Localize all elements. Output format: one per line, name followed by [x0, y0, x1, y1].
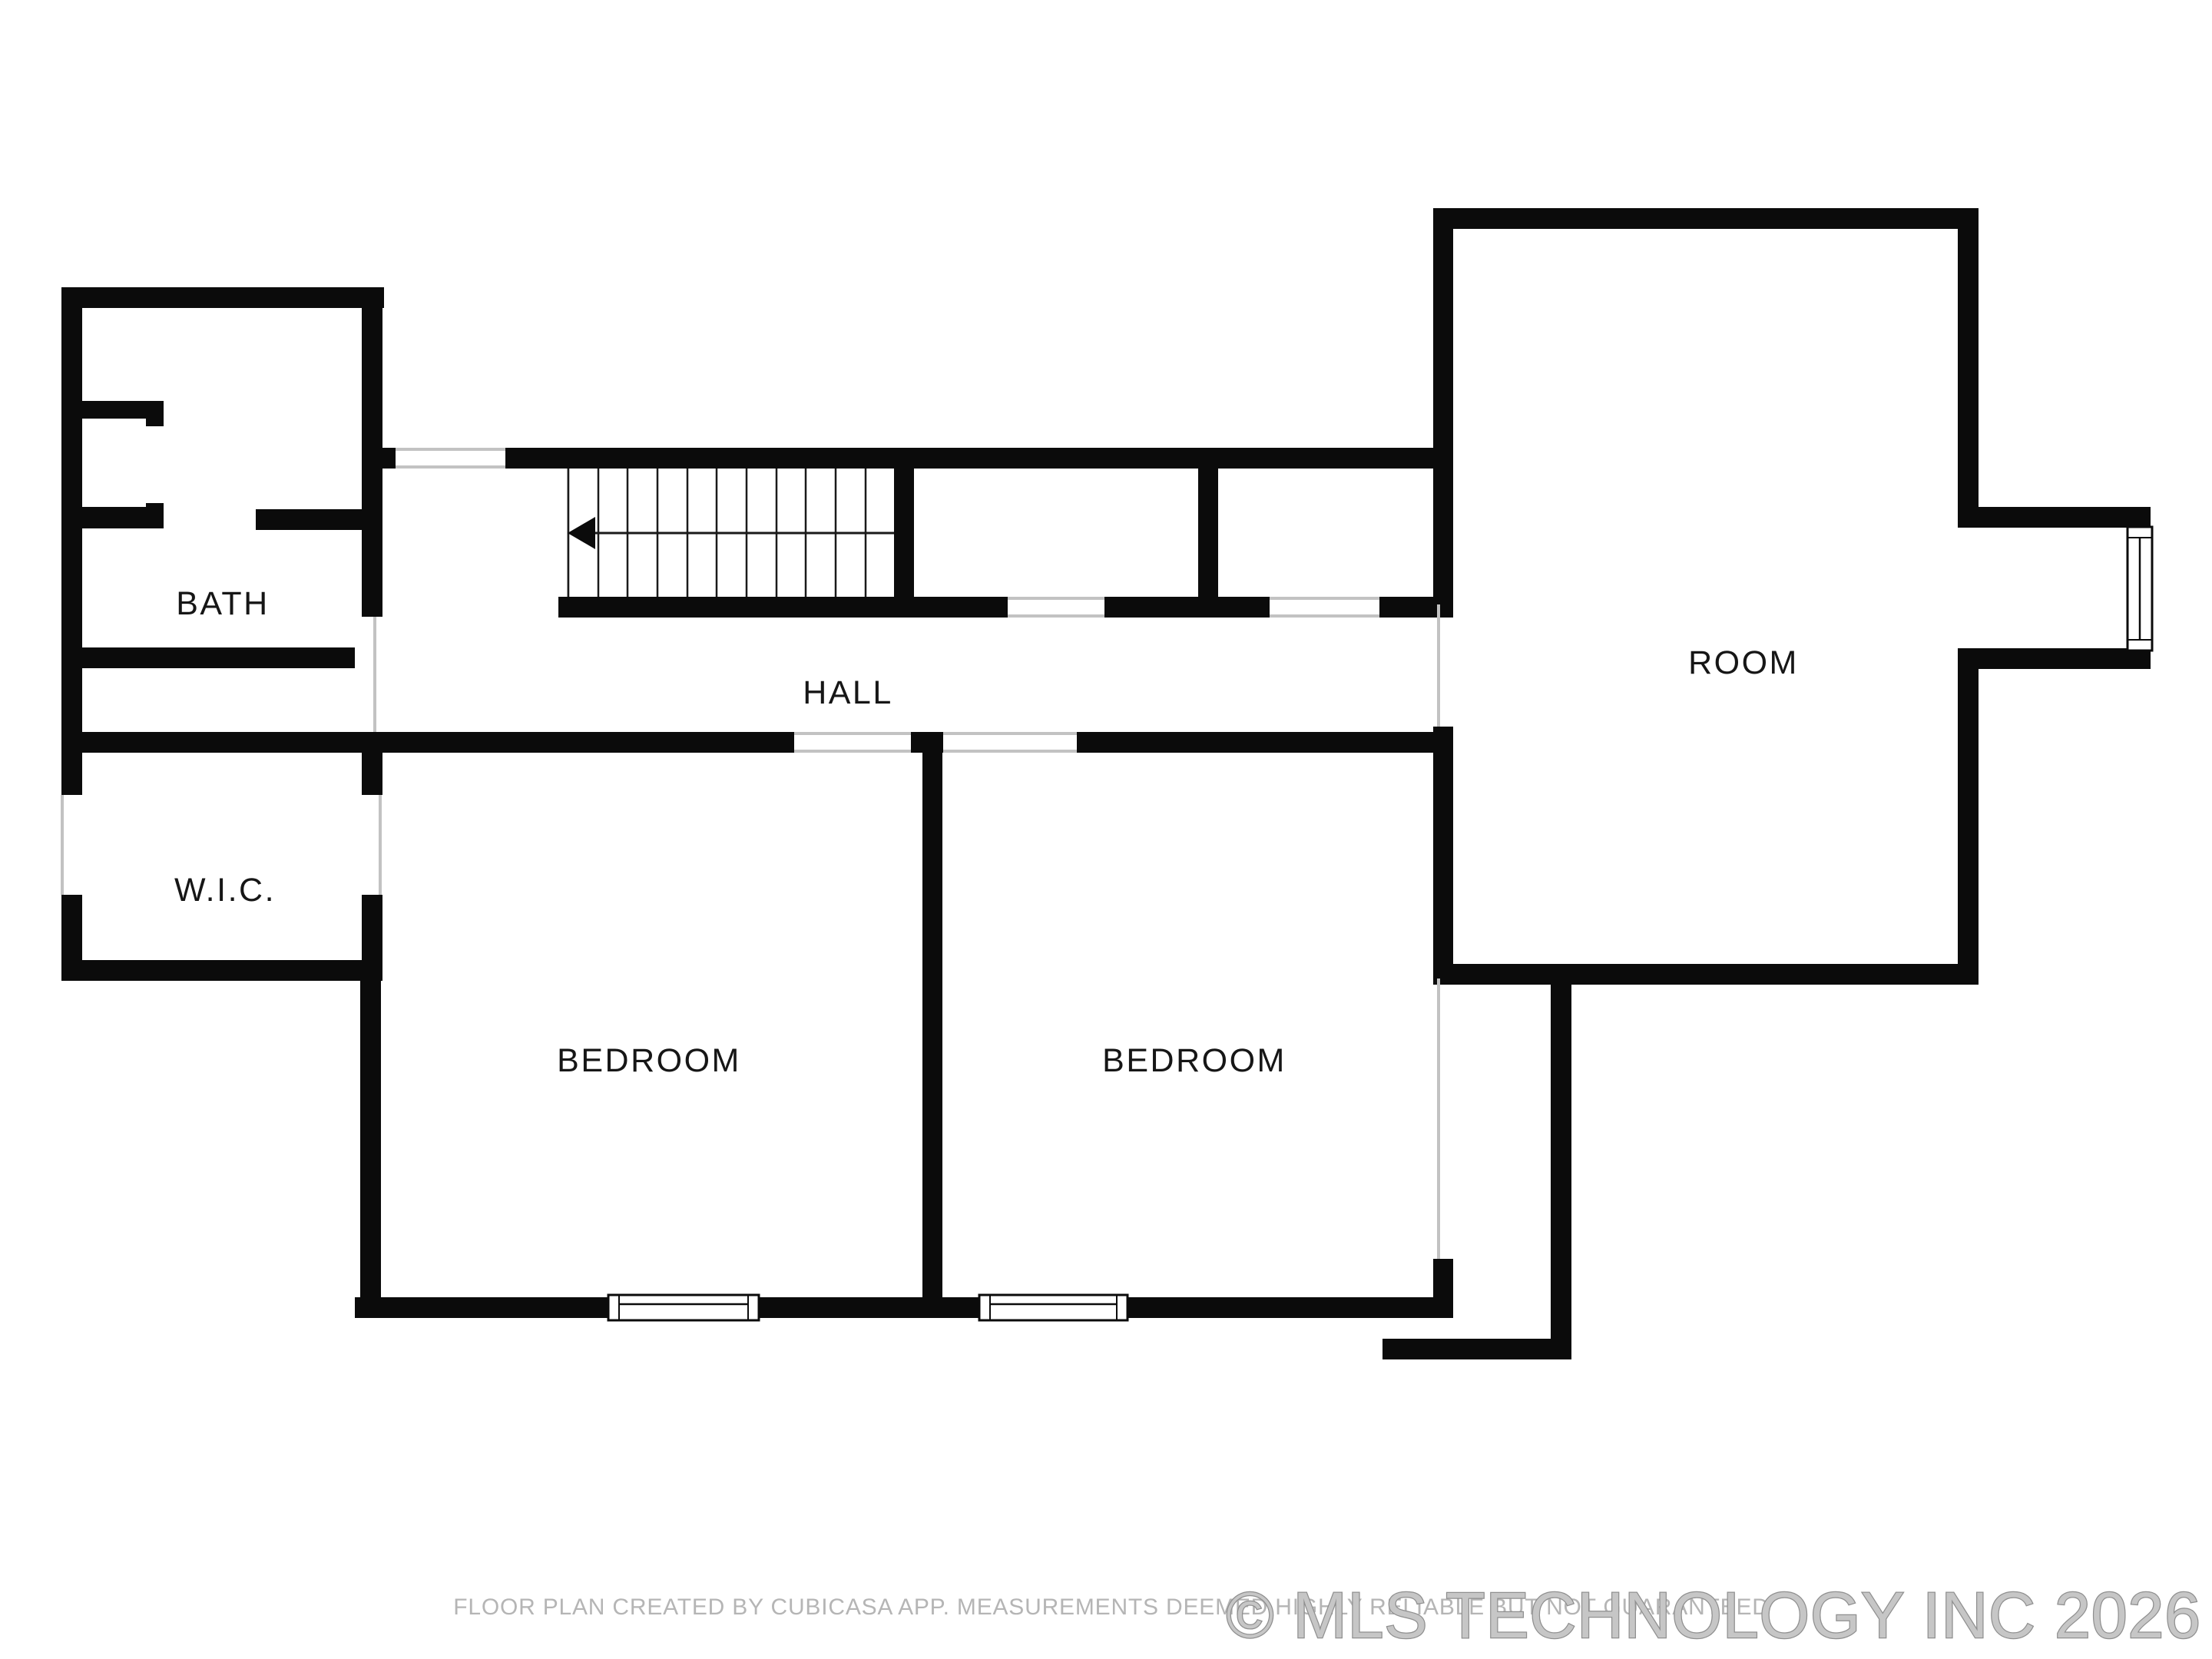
wall — [1433, 727, 1453, 979]
wall — [256, 509, 382, 530]
floor-plan-canvas: BATH W.I.C. HALL BEDROOM BEDROOM ROOM FL… — [0, 0, 2212, 1659]
walls — [61, 208, 2151, 1359]
room-label-bedroom-left: BEDROOM — [557, 1042, 741, 1079]
wall — [355, 732, 794, 753]
opening-line — [943, 732, 1077, 735]
wall — [360, 981, 381, 1318]
wall — [61, 732, 382, 753]
opening-line — [379, 795, 382, 895]
window-bedroom-right — [979, 1295, 1128, 1320]
wall — [1551, 964, 1571, 1359]
wall — [1433, 964, 1979, 985]
wall — [146, 401, 164, 426]
opening-line — [794, 732, 911, 735]
wall — [922, 732, 942, 1318]
wall — [61, 287, 384, 308]
wall — [61, 960, 382, 981]
floor-plan-page: BATH W.I.C. HALL BEDROOM BEDROOM ROOM FL… — [0, 0, 2212, 1659]
opening-line — [1437, 604, 1440, 727]
footer-watermark: © MLS TECHNOLOGY INC 2026 — [1226, 1579, 2201, 1651]
opening-line — [1270, 597, 1379, 600]
wall — [505, 448, 1453, 469]
openings — [61, 448, 1440, 1259]
windows — [608, 527, 2152, 1320]
room-label-room: ROOM — [1688, 644, 1799, 681]
room-label-bath: BATH — [176, 585, 270, 622]
window-bedroom-left — [608, 1295, 759, 1320]
wall — [1958, 208, 1979, 508]
room-label-bedroom-right: BEDROOM — [1102, 1042, 1286, 1079]
wall — [558, 597, 1008, 618]
wall — [146, 503, 164, 528]
wall — [759, 1297, 979, 1318]
wall — [1958, 648, 2151, 669]
opening-line — [1008, 597, 1104, 600]
opening-line — [794, 750, 911, 753]
opening-line — [373, 617, 376, 732]
room-label-wic: W.I.C. — [174, 872, 276, 909]
window-line — [61, 795, 64, 895]
wall — [1433, 208, 1453, 604]
opening-line — [1008, 614, 1104, 618]
stair-direction-arrow — [568, 517, 595, 549]
wall — [1433, 1259, 1453, 1318]
wall — [1433, 208, 1979, 229]
wall — [1128, 1297, 1453, 1318]
opening-line — [396, 448, 505, 451]
wall — [1958, 667, 1979, 985]
wall — [1104, 597, 1270, 618]
opening-line — [943, 750, 1077, 753]
room-label-hall: HALL — [803, 674, 893, 711]
window-room — [2128, 527, 2152, 651]
opening-line — [1437, 979, 1440, 1259]
opening-line — [1270, 614, 1379, 618]
wall — [61, 647, 355, 668]
wall — [1958, 507, 2151, 528]
opening-line — [396, 465, 505, 469]
wall — [894, 469, 914, 597]
staircase — [568, 469, 894, 597]
wall — [1382, 1339, 1571, 1359]
wall — [1198, 469, 1218, 597]
wall — [355, 1297, 608, 1318]
wall — [61, 287, 82, 795]
wall — [1077, 732, 1453, 753]
wall — [362, 448, 396, 469]
